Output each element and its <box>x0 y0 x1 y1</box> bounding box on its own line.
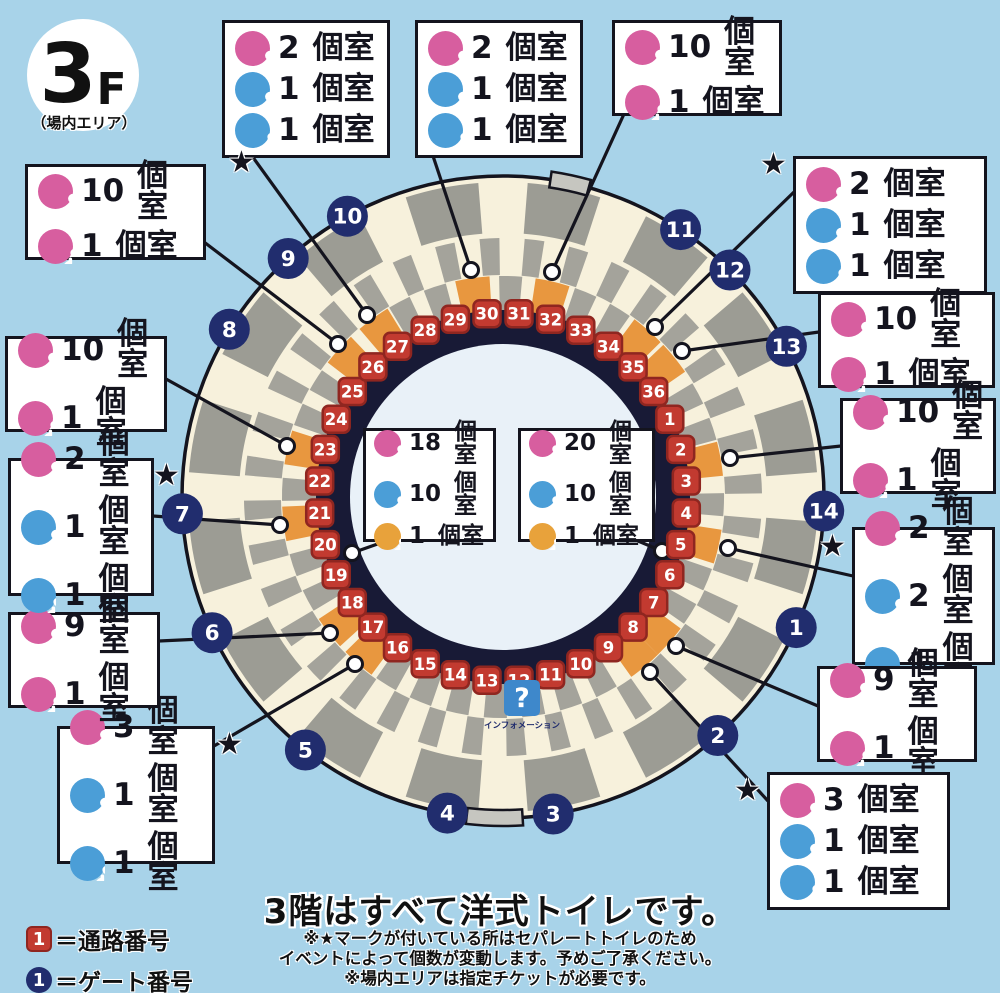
wheelchair-icon <box>853 463 888 498</box>
boundary-notch <box>466 808 523 826</box>
aisle-marker: 7 <box>640 589 667 616</box>
aisle-marker: 31 <box>506 300 533 327</box>
room-count: 1 <box>61 403 83 434</box>
room-count: 1 <box>471 115 493 146</box>
svg-text:20: 20 <box>314 536 337 555</box>
room-unit: 個室 <box>858 785 920 816</box>
legend-aisle-label: ＝通路番号 <box>55 922 170 956</box>
room-count: 2 <box>278 33 300 64</box>
toilet-callout-b9: 3個室1個室1個室 <box>767 772 950 910</box>
toilet-callout-b12: 2個室1個室1個室 <box>8 458 154 596</box>
toilet-count-row: 10個室 <box>529 472 644 518</box>
room-count: 20 <box>564 432 596 455</box>
callout-pointer-dot <box>675 344 690 359</box>
wheelchair-icon <box>21 578 56 613</box>
toilet-count-row: 1個室 <box>21 564 141 626</box>
toilet-count-row: 1個室 <box>806 249 974 284</box>
room-unit: 個室 <box>724 17 769 79</box>
svg-text:31: 31 <box>508 305 531 324</box>
room-count: 1 <box>896 465 918 496</box>
svg-text:13: 13 <box>771 335 801 360</box>
room-unit: 個室 <box>943 565 982 627</box>
toilet-count-row: 1個室 <box>806 208 974 243</box>
toilet-callout-b8: 9個室1個室 <box>817 666 977 762</box>
room-count: 1 <box>64 679 86 710</box>
room-unit: 個室 <box>703 87 765 118</box>
toilet-count-row: 1個室 <box>428 113 570 148</box>
room-unit: 個室 <box>884 251 946 282</box>
female-icon <box>865 511 900 546</box>
room-unit: 個室 <box>454 472 485 518</box>
svg-text:24: 24 <box>325 410 348 429</box>
svg-text:3: 3 <box>681 472 692 491</box>
room-unit: 個室 <box>99 496 141 558</box>
toilet-count-row: 1個室 <box>374 523 485 550</box>
room-unit: 個室 <box>858 867 920 898</box>
room-count: 10 <box>896 397 939 428</box>
svg-text:36: 36 <box>642 383 665 402</box>
room-count: 10 <box>668 32 711 63</box>
toilet-callout-b1: 2個室1個室1個室 <box>222 20 390 158</box>
male-icon <box>529 481 556 508</box>
room-unit: 個室 <box>609 421 644 467</box>
room-unit: 個室 <box>116 231 178 262</box>
aisle-marker: 27 <box>384 333 411 360</box>
wheelchair-icon <box>18 401 53 436</box>
svg-text:13: 13 <box>476 671 499 690</box>
svg-text:5: 5 <box>298 739 313 764</box>
svg-text:11: 11 <box>539 666 562 685</box>
floor-area-note: （場内エリア） <box>14 112 154 133</box>
toilet-callout-b3: 10個室1個室 <box>612 20 782 116</box>
female-icon <box>18 333 53 368</box>
aisle-marker: 1 <box>656 406 683 433</box>
room-unit: 個室 <box>858 826 920 857</box>
room-count: 1 <box>823 826 845 857</box>
male-icon <box>428 72 463 107</box>
room-count: 1 <box>823 867 845 898</box>
wheelchair-icon <box>235 113 270 148</box>
room-count: 1 <box>278 74 300 105</box>
wheelchair-icon <box>374 523 401 550</box>
wheelchair-icon <box>21 677 56 712</box>
toilet-count-row: 2個室 <box>235 31 377 66</box>
aisle-marker: 34 <box>595 333 622 360</box>
toilet-count-row: 1個室 <box>21 496 141 558</box>
toilet-count-row: 10個室 <box>625 17 769 79</box>
svg-text:23: 23 <box>314 440 337 459</box>
room-count: 1 <box>278 115 300 146</box>
svg-text:?: ? <box>514 683 530 714</box>
aisle-marker: 19 <box>323 561 350 588</box>
svg-text:14: 14 <box>444 666 467 685</box>
svg-text:27: 27 <box>386 337 409 356</box>
svg-text:12: 12 <box>715 259 745 284</box>
room-count: 1 <box>849 251 871 282</box>
wheelchair-icon <box>780 865 815 900</box>
room-unit: 個室 <box>506 115 568 146</box>
aisle-marker: 36 <box>640 378 667 405</box>
svg-text:1: 1 <box>789 616 804 641</box>
wheelchair-icon <box>806 249 841 284</box>
aisle-marker: 13 <box>474 667 501 694</box>
aisle-marker: 21 <box>306 500 333 527</box>
aisle-marker: 18 <box>339 589 366 616</box>
room-count: 1 <box>564 525 580 548</box>
aisle-marker: 3 <box>673 468 700 495</box>
aisle-marker: 9 <box>595 634 622 661</box>
gate-marker: 6 <box>192 612 233 653</box>
room-count: 10 <box>564 483 596 506</box>
aisle-marker: 29 <box>442 306 469 333</box>
wheelchair-icon <box>625 85 660 120</box>
room-count: 1 <box>64 580 86 611</box>
aisle-marker: 32 <box>537 306 564 333</box>
female-icon <box>830 663 865 698</box>
room-count: 2 <box>908 581 930 612</box>
female-icon <box>38 174 73 209</box>
svg-text:15: 15 <box>414 655 437 674</box>
aisle-marker: 10 <box>567 650 594 677</box>
separate-toilet-star: ★ <box>734 776 761 806</box>
room-count: 10 <box>61 335 104 366</box>
room-unit: 個室 <box>454 421 485 467</box>
svg-text:21: 21 <box>308 504 331 523</box>
gate-marker: 4 <box>427 793 468 834</box>
aisle-marker: 2 <box>667 436 694 463</box>
svg-text:9: 9 <box>281 247 296 272</box>
callout-pointer-dot <box>643 665 658 680</box>
legend-gate: 1 ＝ゲート番号 <box>26 963 193 993</box>
toilet-count-row: 2個室 <box>865 497 982 559</box>
aisle-marker: 33 <box>567 317 594 344</box>
callout-pointer-dot <box>348 657 363 672</box>
room-unit: 個室 <box>313 74 375 105</box>
wheelchair-icon <box>70 846 105 881</box>
male-icon <box>780 824 815 859</box>
female-icon <box>428 31 463 66</box>
gate-marker: 9 <box>268 238 309 279</box>
svg-text:2: 2 <box>675 440 686 459</box>
toilet-count-row: 2個室 <box>806 167 974 202</box>
callout-pointer-dot <box>648 320 663 335</box>
room-unit: 個室 <box>952 381 983 443</box>
svg-text:5: 5 <box>675 536 686 555</box>
svg-text:8: 8 <box>222 318 237 343</box>
female-icon <box>831 302 866 337</box>
room-unit: 個室 <box>884 169 946 200</box>
room-count: 1 <box>873 733 895 764</box>
svg-text:7: 7 <box>648 594 659 613</box>
gate-marker: 13 <box>766 326 807 367</box>
toilet-count-row: 2個室 <box>865 565 982 627</box>
aisle-marker: 8 <box>620 614 647 641</box>
svg-text:1: 1 <box>664 410 675 429</box>
svg-text:10: 10 <box>569 655 592 674</box>
room-unit: 個室 <box>99 564 141 626</box>
room-count: 2 <box>908 513 930 544</box>
room-count: 1 <box>409 525 425 548</box>
toilet-callout-b13: 10個室1個室 <box>5 336 167 432</box>
gate-marker: 14 <box>803 491 844 532</box>
aisle-marker: 28 <box>412 317 439 344</box>
toilet-callout-b10: 3個室1個室1個室 <box>57 726 215 864</box>
female-icon <box>780 783 815 818</box>
aisle-marker: 30 <box>474 300 501 327</box>
callout-pointer-dot <box>723 451 738 466</box>
aisle-marker: 5 <box>667 531 694 558</box>
toilet-count-row: 10個室 <box>853 381 983 443</box>
toilet-count-row: 1個室 <box>70 764 202 826</box>
svg-text:4: 4 <box>681 504 692 523</box>
callout-pointer-dot <box>721 541 736 556</box>
toilet-count-row: 20個室 <box>529 421 644 467</box>
svg-text:9: 9 <box>603 639 614 658</box>
room-unit: 個室 <box>313 115 375 146</box>
svg-text:34: 34 <box>597 337 620 356</box>
aisle-marker: 16 <box>384 634 411 661</box>
aisle-marker: 15 <box>412 650 439 677</box>
svg-text:32: 32 <box>539 310 562 329</box>
separate-toilet-star: ★ <box>760 150 787 180</box>
male-icon <box>235 72 270 107</box>
svg-text:11: 11 <box>666 218 696 243</box>
svg-text:19: 19 <box>325 566 348 585</box>
male-icon <box>865 579 900 614</box>
toilet-count-row: 10個室 <box>831 289 982 351</box>
room-count: 1 <box>81 231 103 262</box>
room-unit: 個室 <box>96 387 154 449</box>
room-unit: 個室 <box>908 649 964 711</box>
toilet-count-row: 18個室 <box>374 421 485 467</box>
toilet-count-row: 1個室 <box>235 113 377 148</box>
toilet-count-row: 1個室 <box>529 523 644 550</box>
room-unit: 個室 <box>99 663 147 725</box>
aisle-marker: 20 <box>312 531 339 558</box>
legend-aisle: 1 ＝通路番号 <box>26 922 193 956</box>
toilet-count-row: 2個室 <box>428 31 570 66</box>
room-count: 10 <box>874 304 917 335</box>
aisle-marker: 4 <box>673 500 700 527</box>
toilet-count-row: 1個室 <box>780 824 937 859</box>
aisle-marker: 35 <box>620 353 647 380</box>
svg-text:35: 35 <box>622 358 645 377</box>
floor-suffix: F <box>97 68 127 112</box>
room-count: 1 <box>113 780 135 811</box>
room-count: 2 <box>471 33 493 64</box>
legend-gate-label: ＝ゲート番号 <box>55 963 193 993</box>
room-count: 2 <box>849 169 871 200</box>
toilet-count-row: 1個室 <box>830 717 964 779</box>
room-unit: 個室 <box>884 210 946 241</box>
room-unit: 個室 <box>137 161 193 223</box>
separate-toilet-star: ★ <box>216 730 243 760</box>
svg-text:28: 28 <box>414 321 437 340</box>
female-icon <box>235 31 270 66</box>
svg-text:26: 26 <box>361 358 384 377</box>
aisle-marker: 22 <box>306 468 333 495</box>
aisle-marker: 14 <box>442 661 469 688</box>
female-icon <box>529 430 556 457</box>
legend: 1 ＝通路番号 1 ＝ゲート番号 <box>26 922 193 993</box>
room-count: 10 <box>409 483 441 506</box>
male-icon <box>70 778 105 813</box>
svg-text:10: 10 <box>332 205 362 230</box>
room-count: 1 <box>113 848 135 879</box>
room-unit: 個室 <box>506 33 568 64</box>
separate-toilet-star: ★ <box>153 461 180 491</box>
gate-marker: 11 <box>660 209 701 250</box>
callout-pointer-dot <box>273 518 288 533</box>
room-unit: 個室 <box>148 764 202 826</box>
callout-pointer-dot <box>280 439 295 454</box>
svg-text:18: 18 <box>341 594 364 613</box>
gate-marker: 3 <box>533 794 574 835</box>
svg-text:16: 16 <box>386 639 409 658</box>
toilet-callout-b11: 9個室1個室 <box>8 612 160 708</box>
toilet-count-row: 1個室 <box>235 72 377 107</box>
toilet-callout-b6: 10個室1個室 <box>840 398 996 494</box>
aisle-marker: 6 <box>656 561 683 588</box>
toilet-count-row: 10個室 <box>18 319 154 381</box>
separate-toilet-star: ★ <box>228 148 255 178</box>
room-unit: 個室 <box>943 497 982 559</box>
gate-marker: 1 <box>776 607 817 648</box>
callout-pointer-dot <box>545 265 560 280</box>
wheelchair-icon <box>38 229 73 264</box>
room-count: 1 <box>849 210 871 241</box>
toilet-count-row: 3個室 <box>780 783 937 818</box>
toilet-count-row: 1個室 <box>428 72 570 107</box>
toilet-count-row: 1個室 <box>18 387 154 449</box>
aisle-marker-sample: 1 <box>26 926 52 952</box>
separate-toilet-star: ★ <box>819 532 846 562</box>
svg-text:6: 6 <box>205 621 220 646</box>
male-icon <box>806 208 841 243</box>
toilet-callout-b4: 2個室1個室1個室 <box>793 156 987 294</box>
gate-marker: 10 <box>327 196 368 237</box>
male-icon <box>374 481 401 508</box>
toilet-callout-b7: 2個室2個室1個室 <box>852 527 995 665</box>
wheelchair-icon <box>830 731 865 766</box>
aisle-marker: 23 <box>312 436 339 463</box>
svg-text:7: 7 <box>175 502 190 527</box>
room-unit: 個室 <box>313 33 375 64</box>
room-unit: 個室 <box>609 472 644 518</box>
room-count: 1 <box>668 87 690 118</box>
gate-marker: 12 <box>710 250 751 291</box>
toilet-count-row: 1個室 <box>21 663 147 725</box>
toilet-callout-b14: 10個室1個室 <box>25 164 206 260</box>
svg-text:2: 2 <box>710 724 725 749</box>
toilet-count-row: 1個室 <box>38 229 193 264</box>
room-unit: 個室 <box>117 319 154 381</box>
stair-spoke <box>480 238 500 276</box>
callout-pointer-dot <box>669 639 684 654</box>
toilet-callout-c2: 20個室10個室1個室 <box>518 428 655 542</box>
floor-map-page: 1 2 3 4 5 6 7 8 9 10 11 12 13 14 15 16 1… <box>0 0 1000 993</box>
svg-text:8: 8 <box>627 618 638 637</box>
svg-text:30: 30 <box>476 305 499 324</box>
room-count: 1 <box>471 74 493 105</box>
gate-marker: 5 <box>285 730 326 771</box>
gate-marker: 8 <box>209 309 250 350</box>
svg-text:22: 22 <box>308 472 331 491</box>
information-label: インフォメーション <box>484 721 561 731</box>
aisle-marker: 17 <box>359 614 386 641</box>
female-icon <box>853 395 888 430</box>
room-count: 18 <box>409 432 441 455</box>
female-icon <box>806 167 841 202</box>
wheelchair-icon <box>428 113 463 148</box>
callout-pointer-dot <box>464 263 479 278</box>
wheelchair-icon <box>529 523 556 550</box>
floor-number: 3 <box>39 34 96 116</box>
room-unit: 個室 <box>438 525 484 548</box>
room-unit: 個室 <box>908 717 964 779</box>
svg-text:33: 33 <box>569 321 592 340</box>
callout-pointer-dot <box>345 546 360 561</box>
room-unit: 個室 <box>930 289 982 351</box>
toilet-count-row: 1個室 <box>625 85 769 120</box>
gate-marker: 7 <box>162 493 203 534</box>
room-unit: 個室 <box>148 832 202 894</box>
aisle-marker: 25 <box>339 378 366 405</box>
room-count: 9 <box>873 665 895 696</box>
callout-pointer-dot <box>323 626 338 641</box>
female-icon <box>374 430 401 457</box>
callout-pointer-dot <box>360 308 375 323</box>
toilet-count-row: 1個室 <box>70 832 202 894</box>
toilet-callout-b5: 10個室1個室 <box>818 292 995 388</box>
svg-text:14: 14 <box>809 500 839 525</box>
room-unit: 個室 <box>506 74 568 105</box>
female-icon <box>625 30 660 65</box>
gate-marker: 2 <box>697 715 738 756</box>
svg-text:4: 4 <box>440 802 455 827</box>
toilet-count-row: 9個室 <box>830 649 964 711</box>
svg-text:29: 29 <box>444 310 467 329</box>
callout-pointer-dot <box>331 337 346 352</box>
toilet-count-row: 1個室 <box>780 865 937 900</box>
aisle-marker: 11 <box>537 661 564 688</box>
svg-text:25: 25 <box>341 383 364 402</box>
gate-marker-sample: 1 <box>26 967 52 993</box>
male-icon <box>21 510 56 545</box>
room-count: 1 <box>64 512 86 543</box>
svg-text:17: 17 <box>361 618 384 637</box>
toilet-count-row: 10個室 <box>374 472 485 518</box>
room-count: 3 <box>823 785 845 816</box>
room-unit: 個室 <box>593 525 639 548</box>
svg-text:3: 3 <box>546 803 561 828</box>
room-count: 10 <box>81 176 124 207</box>
stair-spoke <box>724 474 762 494</box>
svg-text:6: 6 <box>664 566 675 585</box>
toilet-count-row: 10個室 <box>38 161 193 223</box>
aisle-marker: 26 <box>359 353 386 380</box>
aisle-marker: 24 <box>323 406 350 433</box>
toilet-callout-b2: 2個室1個室1個室 <box>415 20 583 158</box>
toilet-callout-c1: 18個室10個室1個室 <box>363 428 496 542</box>
